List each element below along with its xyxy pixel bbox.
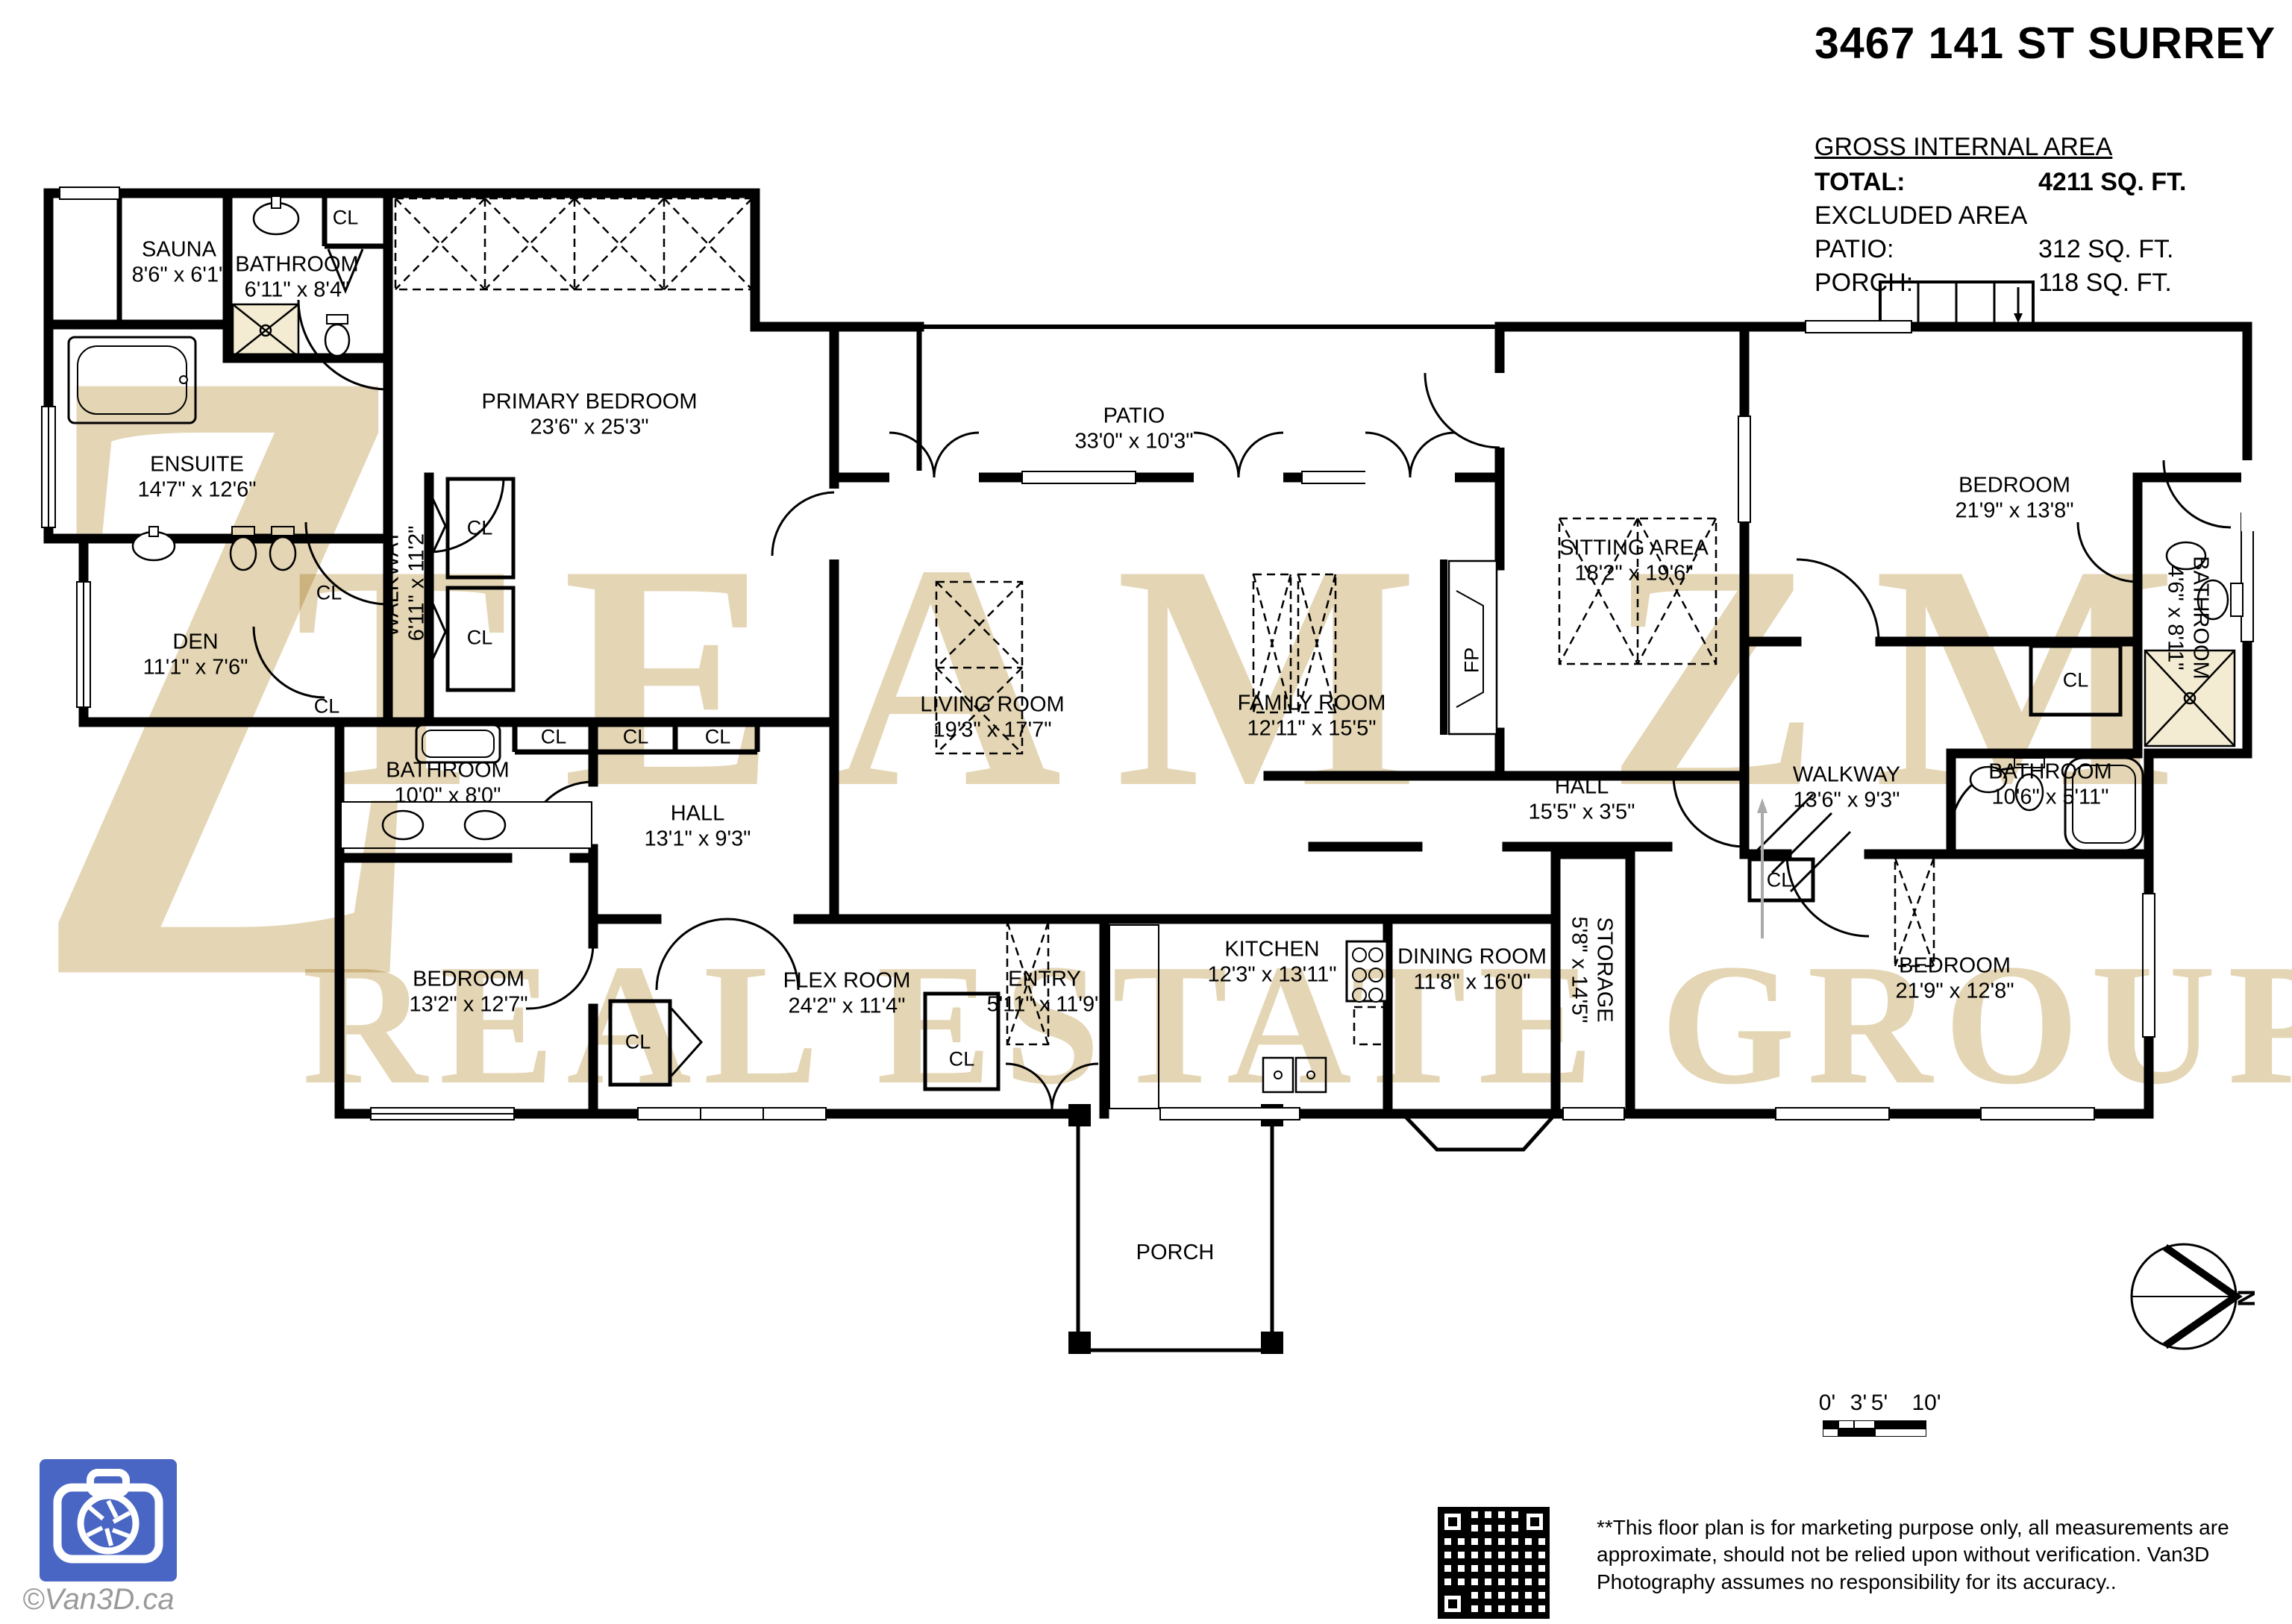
area-heading: GROSS INTERNAL AREA (1814, 131, 2186, 164)
closet-label: CL (333, 207, 359, 230)
floor-plan-page: Z TEAM ZM REAL ESTATE GROUP 3467 141 ST … (0, 0, 2292, 1624)
room-label-walkway-west: WALKWAY6'11" x 11'2" (379, 526, 429, 642)
camera-icon (40, 1459, 177, 1581)
closet-label: CL (467, 517, 493, 540)
room-label-porch: PORCH (1136, 1241, 1215, 1266)
closet-label: CL (949, 1048, 975, 1071)
room-label-bedroom-sw: BEDROOM13'2" x 12'7" (409, 967, 527, 1017)
closet-label: CL (1767, 869, 1793, 892)
closet-label: CL (2063, 669, 2089, 692)
closet-label: CL (314, 695, 340, 718)
compass (2128, 1240, 2247, 1356)
closet-label: CL (467, 627, 493, 650)
room-label-bathroom-ensuite-wing: BATHROOM6'11" x 8'4" (235, 252, 358, 302)
room-label-primary-bedroom: PRIMARY BEDROOM23'6" x 25'3" (482, 389, 698, 439)
fireplace-label: FP (1461, 648, 1484, 674)
disclaimer-text: **This floor plan is for marketing purpo… (1597, 1514, 2253, 1596)
closet-label: CL (541, 726, 567, 749)
room-label-sitting-area: SITTING AREA18'2" x 19'6" (1559, 536, 1709, 586)
room-label-bathroom-south: BATHROOM10'0" x 8'0" (386, 758, 509, 808)
room-label-bedroom-se: BEDROOM21'9" x 12'8" (1895, 953, 2014, 1003)
qr-code (1438, 1507, 1550, 1619)
closet-label: CL (625, 1031, 651, 1054)
room-label-kitchen: KITCHEN12'3" x 13'11" (1207, 937, 1336, 987)
room-label-den: DEN11'1" x 7'6" (143, 630, 248, 680)
room-label-storage: STORAGE5'8" x 14'5" (1566, 917, 1616, 1023)
room-label-entry: ENTRY5'11" x 11'9" (987, 967, 1103, 1017)
room-label-living-room: LIVING ROOM19'3" x 17'7" (920, 692, 1064, 742)
room-label-dining-room: DINING ROOM11'8" x 16'0" (1397, 944, 1547, 994)
north-label: N (2232, 1289, 2260, 1306)
area-summary: GROSS INTERNAL AREA TOTAL:4211 SQ. FT. E… (1814, 131, 2186, 300)
room-label-walkway-east: WALKWAY13'6" x 9'3" (1793, 762, 1900, 812)
credit-text: ©Van3D.ca (22, 1583, 175, 1617)
room-label-sauna: SAUNA8'6" x 6'1" (132, 237, 227, 287)
room-label-hall-south: HALL13'1" x 9'3" (645, 801, 751, 851)
room-label-hall-east: HALL15'5" x 3'5" (1529, 774, 1635, 824)
closet-label: CL (623, 726, 649, 749)
room-label-ensuite: ENSUITE14'7" x 12'6" (137, 452, 256, 502)
page-title: 3467 141 ST SURREY (1814, 18, 2276, 69)
scale-bar-blocks (1823, 1420, 1926, 1437)
room-label-family-room: FAMILY ROOM12'11" x 15'5" (1238, 691, 1386, 741)
room-label-patio: PATIO33'0" x 10'3" (1074, 404, 1193, 454)
room-label-bedroom-ne: BEDROOM21'9" x 13'8" (1955, 473, 2073, 523)
room-label-bathroom-east: BATHROOM10'6" x 5'11" (1988, 759, 2111, 809)
room-label-flex-room: FLEX ROOM24'2" x 11'4" (783, 968, 911, 1018)
brand-logo (40, 1459, 177, 1581)
room-label-bathroom-ne: BATHROOM4'6" x 8'11" (2162, 556, 2212, 679)
closet-label: CL (316, 582, 342, 605)
closet-label: CL (705, 726, 731, 749)
